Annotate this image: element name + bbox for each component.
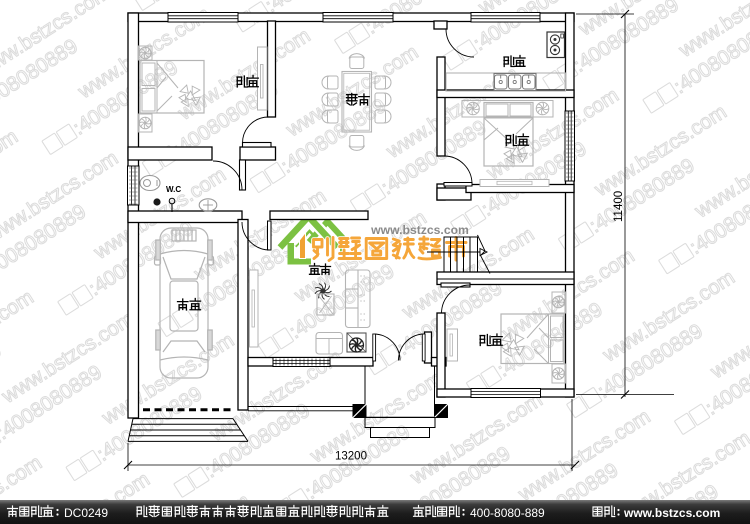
svg-text:W.C: W.C — [166, 185, 181, 194]
svg-text:www.bstzcs.com: www.bstzcs.com — [623, 506, 720, 520]
svg-text:11400: 11400 — [613, 191, 625, 222]
svg-text:DC0249: DC0249 — [64, 506, 108, 520]
svg-text:www.bstzcs.com: www.bstzcs.com — [370, 223, 469, 237]
svg-text:400-8080-889: 400-8080-889 — [470, 506, 545, 520]
svg-text:13200: 13200 — [335, 451, 367, 463]
